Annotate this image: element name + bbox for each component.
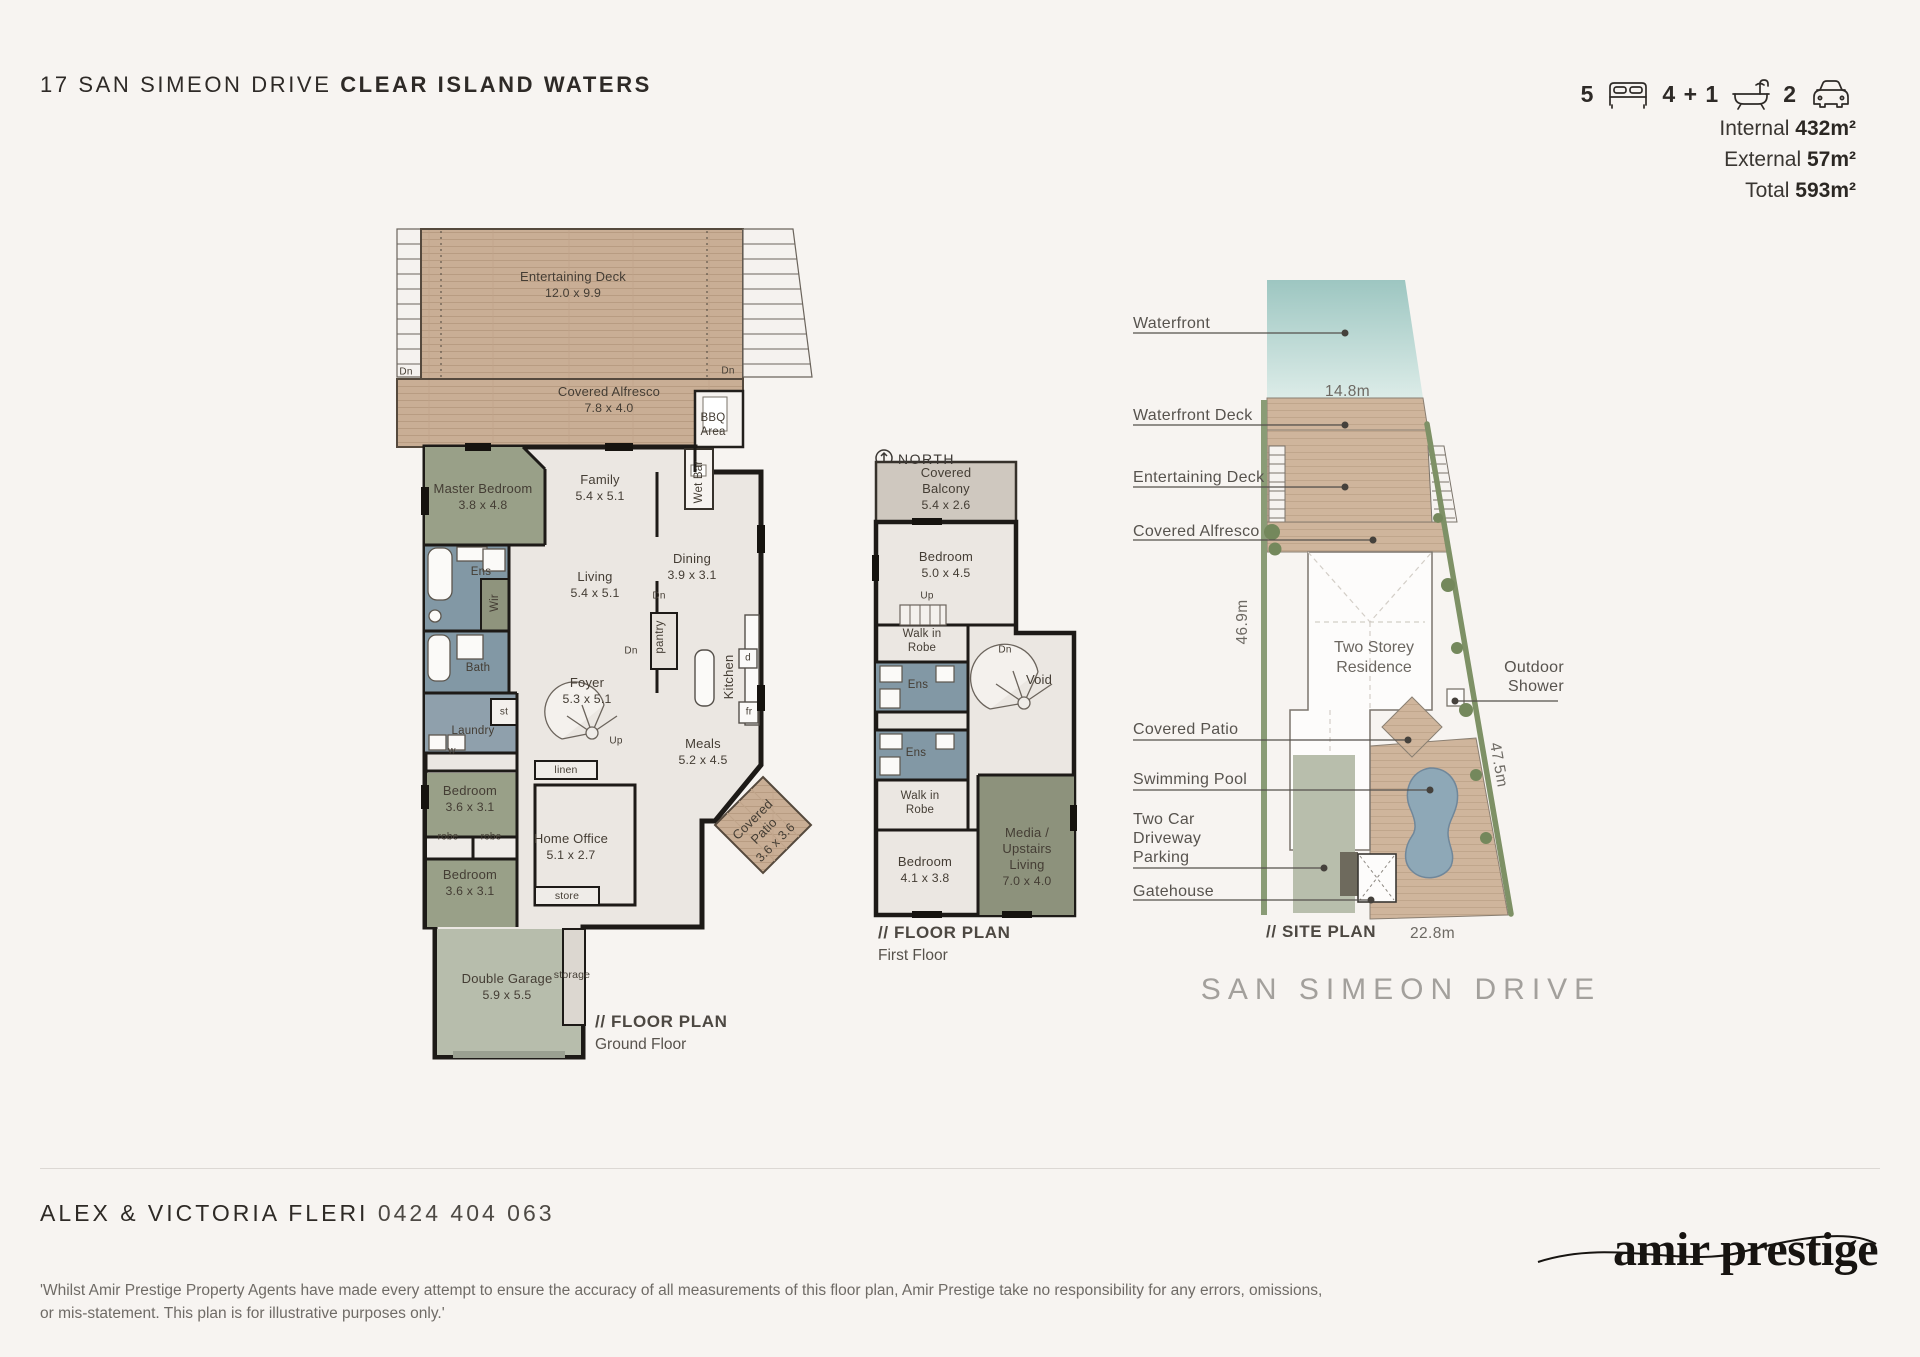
area-summary: Internal 432m² External 57m² Total 593m² bbox=[1719, 113, 1856, 206]
linen-tag: linen bbox=[554, 764, 577, 776]
room-meals: Meals5.2 x 4.5 bbox=[679, 736, 728, 768]
room-media: Media / Upstairs Living7.0 x 4.0 bbox=[985, 825, 1069, 889]
gatehouse-wall bbox=[1340, 852, 1358, 896]
callout-swimming-pool: Swimming Pool bbox=[1133, 770, 1247, 789]
room-foyer: Foyer5.3 x 5.1 bbox=[563, 675, 612, 707]
ground-floor-plan-label: // FLOOR PLAN Ground Floor bbox=[595, 1012, 727, 1054]
room-dining: Dining3.9 x 3.1 bbox=[668, 551, 717, 583]
site-stairs-left bbox=[1269, 446, 1285, 522]
up-tag: Up bbox=[609, 736, 622, 747]
area-label: Internal bbox=[1719, 117, 1789, 140]
area-value: 432m² bbox=[1795, 117, 1856, 140]
room-bedroom-front: Bedroom5.0 x 4.5 bbox=[919, 549, 973, 581]
agent-phone: 0424 404 063 bbox=[378, 1200, 555, 1226]
agency-logo: amir prestige bbox=[1613, 1222, 1878, 1277]
room-home-office: Home Office5.1 x 2.7 bbox=[528, 831, 614, 863]
alfresco-area bbox=[1267, 522, 1449, 552]
bed-icon bbox=[1605, 78, 1651, 110]
dn-tag: Dn bbox=[399, 367, 412, 378]
area-row: Total 593m² bbox=[1719, 175, 1856, 206]
callout-entertaining-deck: Entertaining Deck bbox=[1133, 468, 1264, 487]
room-living: Living5.4 x 5.1 bbox=[571, 569, 620, 601]
room-wir: Wir bbox=[488, 594, 502, 612]
deck-stairs-left bbox=[397, 229, 421, 377]
dim-water: 14.8m bbox=[1325, 383, 1370, 401]
callout-waterfront-deck: Waterfront Deck bbox=[1133, 406, 1253, 425]
room-bbq-area: BBQ Area bbox=[688, 411, 738, 439]
room-walk-in-robe-a: Walk in Robe bbox=[891, 627, 953, 655]
street-name: SAN SIMEON DRIVE bbox=[1201, 973, 1601, 1007]
storage-tag: storage bbox=[554, 969, 590, 981]
baths-count: 4 + 1 bbox=[1662, 81, 1719, 108]
callout-covered-alfresco: Covered Alfresco bbox=[1133, 522, 1260, 541]
gatehouse-structure bbox=[1358, 854, 1396, 902]
area-value: 57m² bbox=[1807, 148, 1856, 171]
room-bedroom-b: Bedroom3.6 x 3.1 bbox=[443, 867, 497, 899]
dn-tag: Dn bbox=[652, 591, 665, 602]
dn-tag: Dn bbox=[998, 645, 1011, 656]
room-ens: Ens bbox=[471, 565, 491, 579]
area-value: 593m² bbox=[1795, 179, 1856, 202]
room-kitchen: Kitchen bbox=[721, 655, 737, 700]
room-ens-a: Ens bbox=[908, 678, 928, 692]
dn-tag: Dn bbox=[721, 366, 734, 377]
room-covered-alfresco: Covered Alfresco7.8 x 4.0 bbox=[553, 384, 665, 416]
area-label: External bbox=[1724, 148, 1801, 171]
dim-side-left: 46.9m bbox=[1234, 599, 1252, 644]
room-pantry: pantry bbox=[653, 620, 667, 653]
dim-front: 22.8m bbox=[1410, 925, 1455, 943]
beds-count: 5 bbox=[1581, 81, 1595, 108]
page-title: 17 SAN SIMEON DRIVE CLEAR ISLAND WATERS bbox=[40, 72, 652, 98]
area-row: External 57m² bbox=[1719, 144, 1856, 175]
st-tag: st bbox=[500, 707, 508, 718]
room-bedroom-rear: Bedroom4.1 x 3.8 bbox=[898, 854, 952, 886]
agent-name: ALEX & VICTORIA FLERI bbox=[40, 1200, 368, 1226]
callout-outdoor-shower: Outdoor Shower bbox=[1488, 658, 1564, 696]
property-stats: 5 4 + 1 2 bbox=[1581, 76, 1854, 112]
disclaimer-text: 'Whilst Amir Prestige Property Agents ha… bbox=[40, 1279, 1325, 1326]
room-family: Family5.4 x 5.1 bbox=[576, 472, 625, 504]
room-laundry: Laundry bbox=[452, 724, 495, 738]
area-row: Internal 432m² bbox=[1719, 113, 1856, 144]
area-label: Total bbox=[1745, 179, 1789, 202]
callout-waterfront: Waterfront bbox=[1133, 314, 1210, 333]
room-bath: Bath bbox=[466, 661, 490, 675]
agent-contact: ALEX & VICTORIA FLERI 0424 404 063 bbox=[40, 1200, 555, 1227]
cars-count: 2 bbox=[1783, 81, 1797, 108]
address-street: 17 SAN SIMEON DRIVE bbox=[40, 72, 331, 97]
site-plan-label: // SITE PLAN bbox=[1266, 922, 1376, 942]
fr-tag: fr bbox=[746, 707, 753, 718]
d-tag: d bbox=[745, 653, 751, 664]
room-void: Void bbox=[1026, 672, 1052, 688]
room-entertaining-deck: Entertaining Deck12.0 x 9.9 bbox=[508, 269, 638, 301]
floor-plan-page: 17 SAN SIMEON DRIVE CLEAR ISLAND WATERS … bbox=[0, 0, 1920, 1357]
robe-tag: robe bbox=[481, 832, 502, 843]
room-wet-bar: Wet Bar bbox=[692, 461, 706, 504]
landing-stair bbox=[900, 605, 946, 625]
w-tag: w bbox=[448, 746, 455, 757]
room-bedroom-a: Bedroom3.6 x 3.1 bbox=[443, 783, 497, 815]
garage-door bbox=[453, 1051, 565, 1058]
entertaining-deck bbox=[421, 229, 743, 379]
callout-gatehouse: Gatehouse bbox=[1133, 882, 1214, 901]
room-master-bedroom: Master Bedroom3.8 x 4.8 bbox=[431, 481, 535, 513]
room-ens-b: Ens bbox=[906, 746, 926, 760]
robe-tag: robe bbox=[438, 832, 459, 843]
up-tag: Up bbox=[920, 591, 933, 602]
deck-stairs-right bbox=[743, 229, 812, 377]
dn-tag: Dn bbox=[624, 646, 637, 657]
callout-covered-patio: Covered Patio bbox=[1133, 720, 1238, 739]
callout-driveway: Two Car Driveway Parking bbox=[1133, 810, 1221, 868]
room-double-garage: Double Garage5.9 x 5.5 bbox=[457, 971, 557, 1003]
first-floor-plan-label: // FLOOR PLAN First Floor bbox=[878, 923, 1010, 965]
first-floor-plan bbox=[872, 445, 1078, 1005]
waterfront-water bbox=[1267, 280, 1423, 398]
store-tag: store bbox=[555, 890, 579, 902]
room-walk-in-robe-b: Walk in Robe bbox=[889, 789, 951, 817]
address-suburb: CLEAR ISLAND WATERS bbox=[340, 72, 652, 97]
footer-divider bbox=[40, 1168, 1880, 1169]
room-covered-balcony: Covered Balcony5.4 x 2.6 bbox=[904, 465, 988, 513]
car-icon bbox=[1808, 77, 1854, 111]
bath-icon bbox=[1730, 76, 1772, 112]
residence-label: Two Storey Residence bbox=[1314, 638, 1434, 678]
ground-floor-plan bbox=[395, 225, 815, 1075]
entertaining-deck-area bbox=[1267, 430, 1444, 522]
